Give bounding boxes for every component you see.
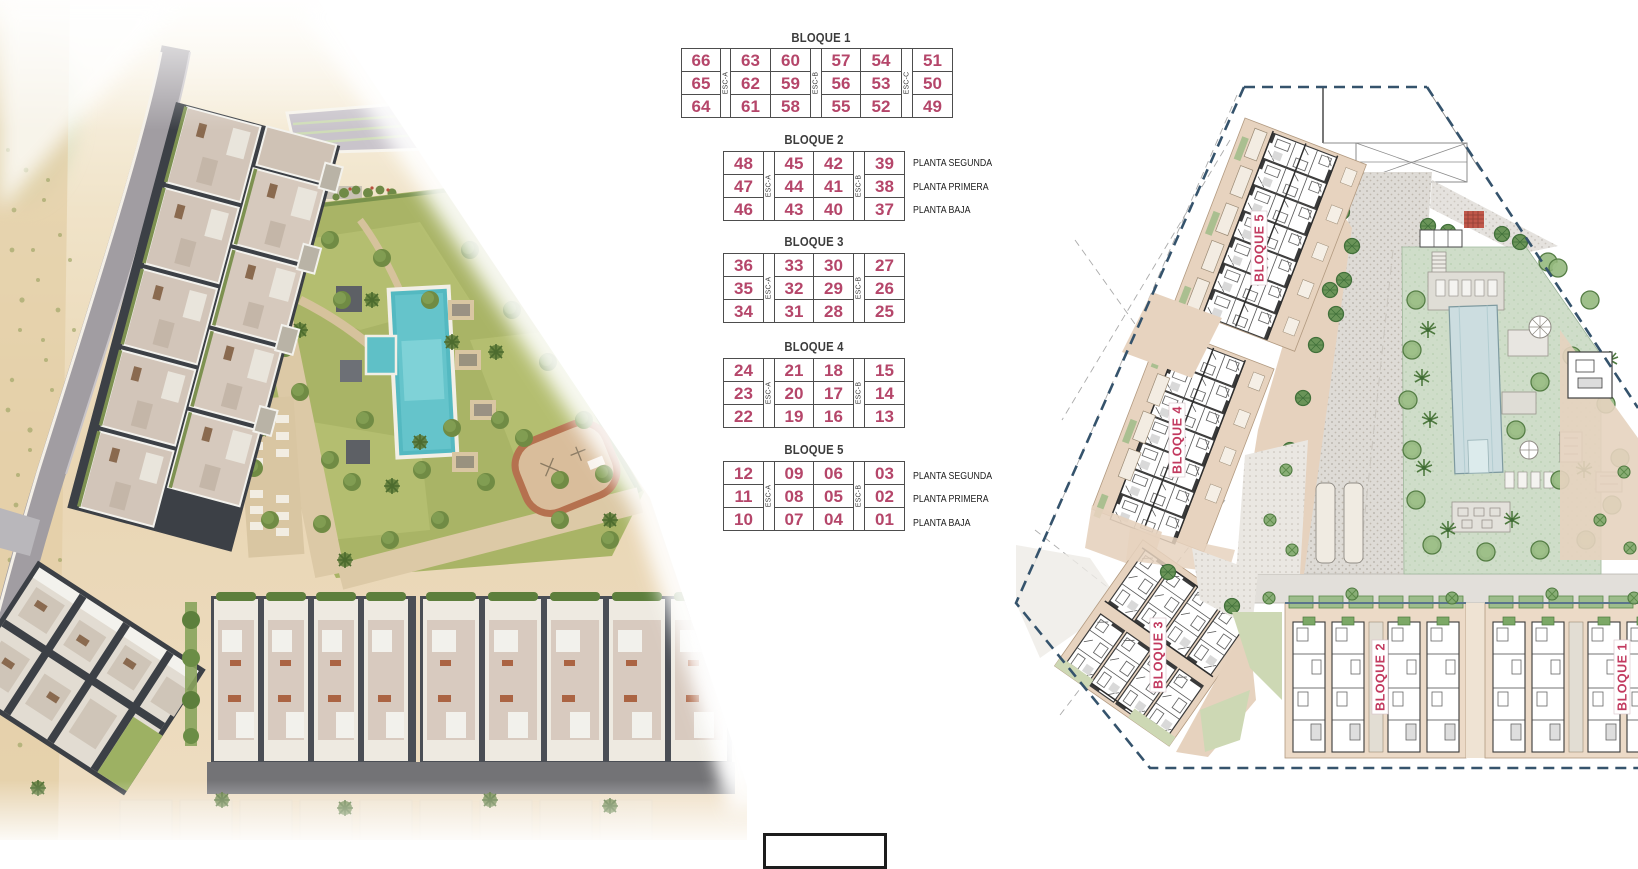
svg-text:BLOQUE 3: BLOQUE 3 <box>1152 621 1166 689</box>
svg-text:BLOQUE 1: BLOQUE 1 <box>1616 643 1630 711</box>
svg-text:BLOQUE 2: BLOQUE 2 <box>1374 643 1388 711</box>
svg-text:BLOQUE 5: BLOQUE 5 <box>1253 214 1267 282</box>
svg-text:BLOQUE 4: BLOQUE 4 <box>1171 406 1185 474</box>
